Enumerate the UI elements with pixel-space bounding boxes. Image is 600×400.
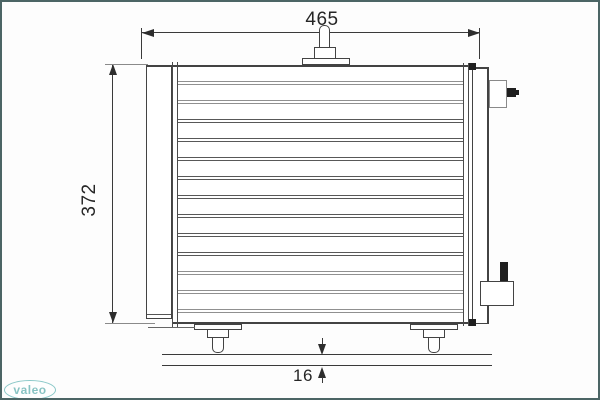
right-tank-top-weld-mark xyxy=(469,63,476,70)
dim-depth-arrow-up-icon xyxy=(318,367,326,378)
core-tube-line xyxy=(178,157,463,161)
right-header-line-inner xyxy=(463,63,464,326)
lower-port-pin xyxy=(500,262,508,283)
top-mount-pin xyxy=(319,25,330,49)
bottom-step-line xyxy=(148,327,195,328)
upper-port-pin-tip xyxy=(515,90,519,95)
dim-depth-stem-bottom xyxy=(322,377,323,383)
dim-depth-arrow-down-icon xyxy=(318,344,326,355)
core-tube-line xyxy=(178,309,463,313)
valeo-logo-text: valeo xyxy=(13,383,46,397)
dim-width-ext-right xyxy=(479,28,480,59)
dim-depth-line-bottom xyxy=(162,365,492,366)
right-tank-bottom-weld-mark xyxy=(469,319,476,326)
drawing-canvas: 465 372 16 xyxy=(0,0,600,400)
core-tube-line xyxy=(178,271,463,275)
core-tube-line xyxy=(178,252,463,256)
top-mount-plate xyxy=(302,58,350,65)
core-tube-line xyxy=(178,214,463,218)
core-tube-line xyxy=(178,119,463,123)
core-tube-line xyxy=(178,100,463,104)
right-header-line-outer xyxy=(468,63,469,326)
dim-depth-label: 16 xyxy=(293,366,313,386)
core-tube-line xyxy=(178,195,463,199)
core-tube-line xyxy=(178,81,463,85)
dim-height-arrow-down-icon xyxy=(109,312,117,323)
core-tube-line xyxy=(178,176,463,180)
lower-port-block xyxy=(480,281,514,306)
left-peg-pin xyxy=(212,337,224,353)
dim-height-label: 372 xyxy=(79,170,101,230)
dim-width-arrow-left-icon xyxy=(142,29,154,37)
left-header-line-inner xyxy=(177,62,178,328)
receiver-drier xyxy=(146,65,172,319)
dim-height-ext-bottom xyxy=(105,323,155,324)
upper-port-block xyxy=(489,80,507,108)
dim-height-line xyxy=(112,65,113,323)
core-tubes xyxy=(178,65,463,322)
dim-width-line xyxy=(142,32,480,33)
valeo-logo: valeo xyxy=(4,380,56,400)
dim-width-ext-left xyxy=(141,28,142,59)
dim-height-ext-top xyxy=(105,64,148,65)
left-header-line-outer xyxy=(172,62,173,328)
core-tube-line xyxy=(178,290,463,294)
receiver-drier-bottom-seam xyxy=(147,314,171,315)
dim-height-arrow-up-icon xyxy=(109,64,117,75)
right-peg-pin xyxy=(428,337,440,353)
core-tube-line xyxy=(178,138,463,142)
dim-depth-line-top xyxy=(162,354,492,355)
core-tube-line xyxy=(178,233,463,237)
